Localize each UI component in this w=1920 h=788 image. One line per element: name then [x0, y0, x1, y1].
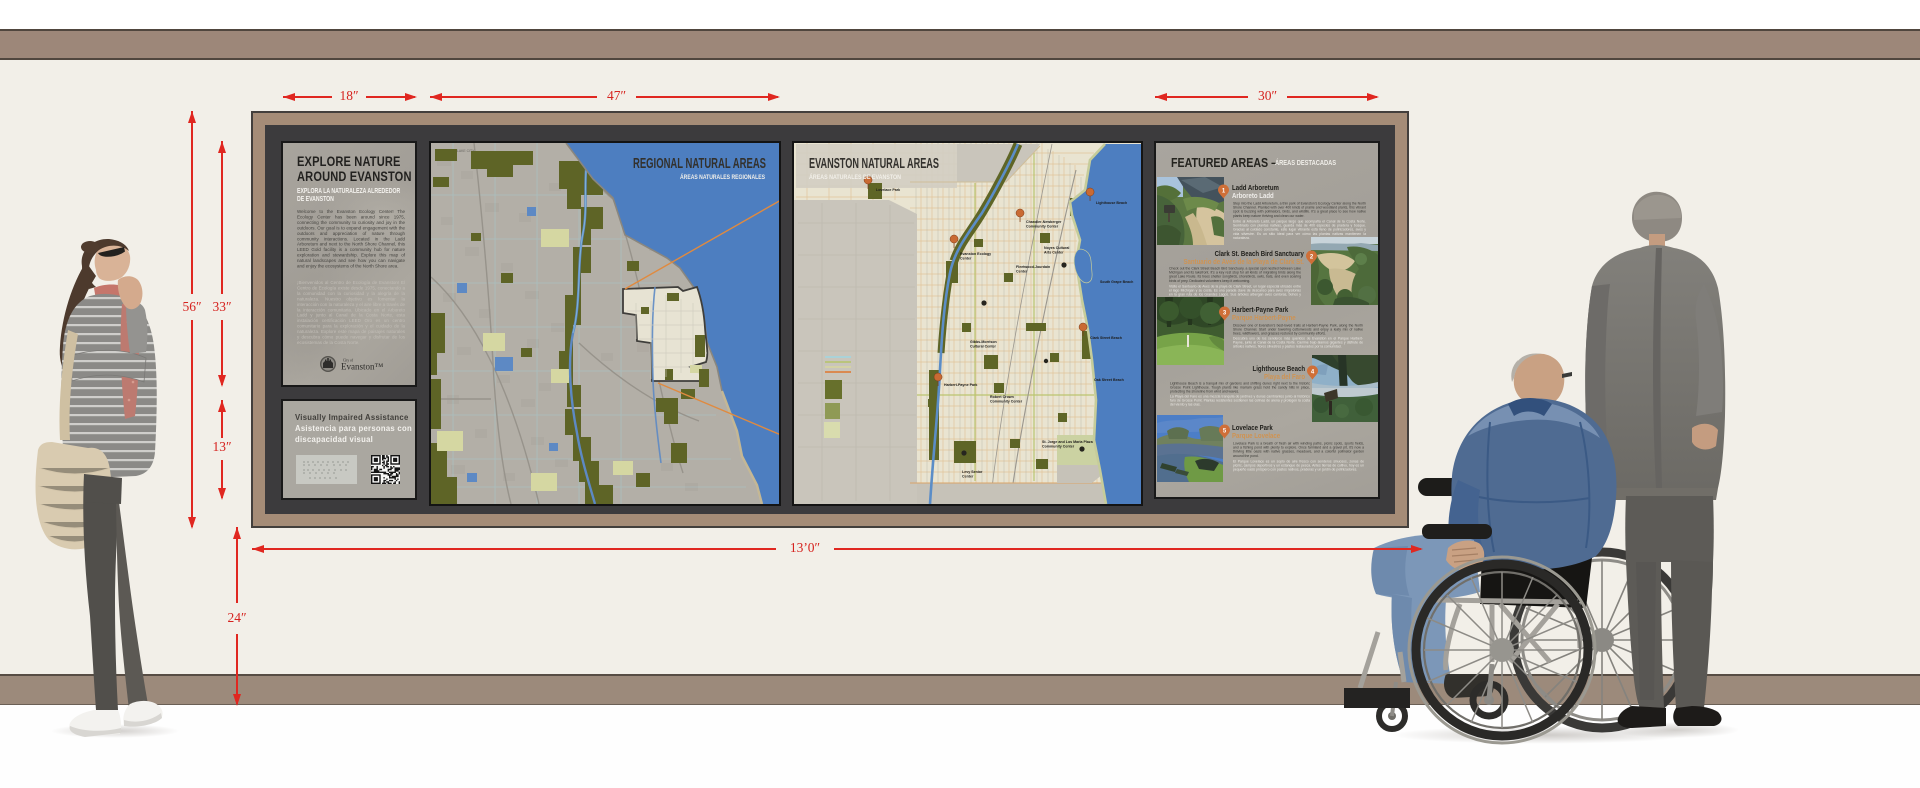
svg-text:ÁREAS NATURALES REGIONALES: ÁREAS NATURALES REGIONALES: [680, 172, 765, 181]
svg-text:Chandler-Newberger: Chandler-Newberger: [1026, 220, 1062, 224]
svg-text:Arts Center: Arts Center: [1044, 251, 1064, 255]
svg-text:Cultural Center: Cultural Center: [970, 345, 997, 349]
svg-text:Gibbs-Morrison: Gibbs-Morrison: [970, 340, 997, 344]
svg-text:Center: Center: [960, 257, 972, 261]
svg-text:Oak Street Beach: Oak Street Beach: [1094, 378, 1124, 382]
svg-text:Harbert-Payne Park: Harbert-Payne Park: [944, 383, 977, 387]
svg-text:Fleetwood-Jourdain: Fleetwood-Jourdain: [1016, 265, 1050, 269]
svg-text:Clark Street Beach: Clark Street Beach: [1090, 336, 1122, 340]
svg-text:Evanston™: Evanston™: [341, 362, 383, 372]
svg-text:Community Center: Community Center: [1042, 445, 1075, 449]
svg-text:Center: Center: [962, 475, 974, 479]
svg-text:Community Center: Community Center: [1026, 225, 1059, 229]
svg-text:Robert Crown: Robert Crown: [990, 395, 1014, 399]
svg-text:Lighthouse Beach: Lighthouse Beach: [1096, 201, 1127, 205]
svg-text:St. Jorge and Los Maria Plaza: St. Jorge and Los Maria Plaza: [1042, 440, 1094, 444]
svg-text:Levy Senior: Levy Senior: [962, 470, 983, 474]
svg-text:REGIONAL NATURAL AREAS: REGIONAL NATURAL AREAS: [633, 156, 766, 172]
svg-text:ÁREAS NATURALES DE EVANSTON: ÁREAS NATURALES DE EVANSTON: [809, 172, 901, 181]
svg-text:Noyes Cultural: Noyes Cultural: [1044, 246, 1069, 250]
svg-text:Community Center: Community Center: [990, 400, 1023, 404]
svg-text:Lovelace Park: Lovelace Park: [876, 188, 900, 192]
svg-text:Center: Center: [1016, 270, 1028, 274]
svg-text:LAKE CITY: LAKE CITY: [457, 149, 475, 153]
svg-text:South Grape Beach: South Grape Beach: [1100, 280, 1133, 284]
svg-text:EVANSTON NATURAL AREAS: EVANSTON NATURAL AREAS: [809, 156, 939, 172]
svg-text:Evanston Ecology: Evanston Ecology: [960, 252, 991, 256]
